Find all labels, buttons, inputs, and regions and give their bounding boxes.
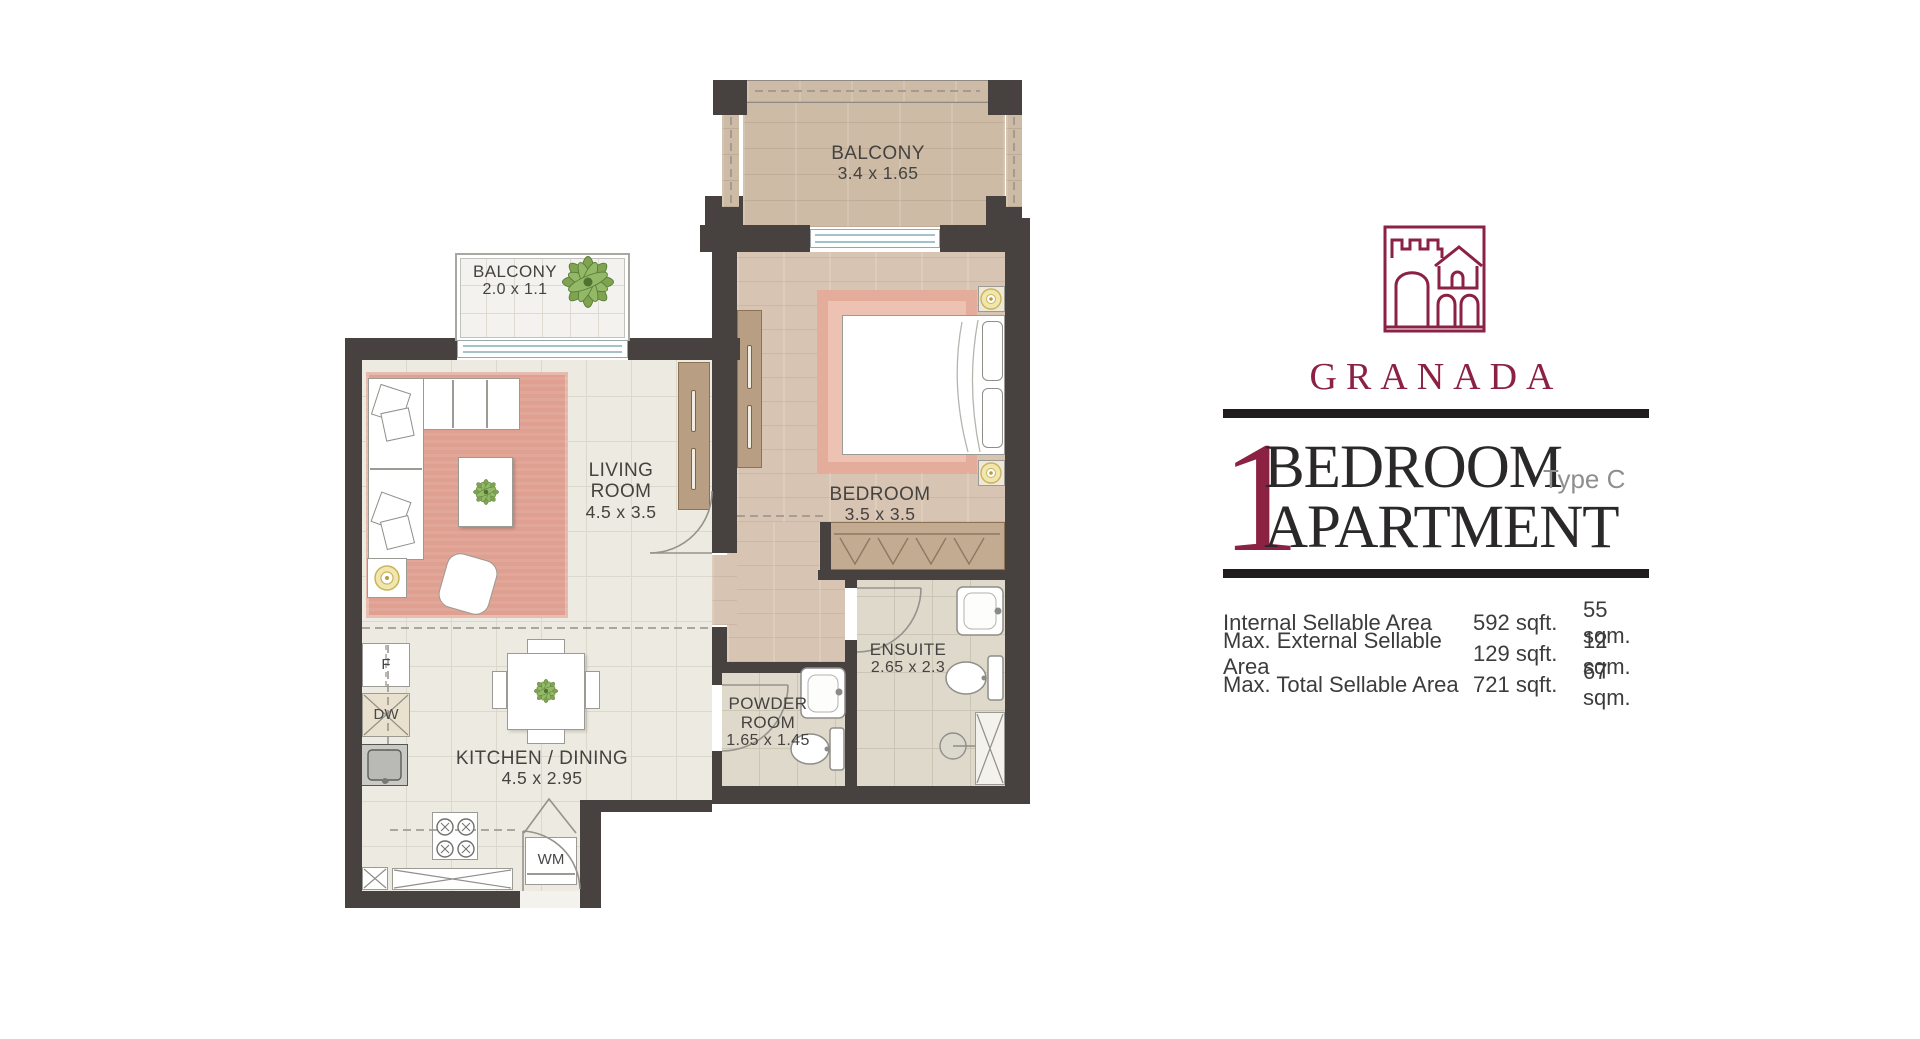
sofa-cushion-line xyxy=(486,380,488,428)
granada-logo-icon xyxy=(1382,224,1487,334)
entrance-opening xyxy=(520,891,580,908)
dining-chair xyxy=(585,671,600,709)
bed-pillow xyxy=(982,321,1003,381)
window-bedroom-balcony xyxy=(810,229,940,248)
dresser-handle xyxy=(747,405,752,449)
label-balcony-side: BALCONY 2.0 x 1.1 xyxy=(460,262,570,299)
tv-console-handle xyxy=(691,448,696,490)
brand-name: GRANADA xyxy=(1223,355,1649,399)
wall xyxy=(345,338,457,360)
kitchen-sink-unit xyxy=(360,744,408,786)
wall-bottom-right xyxy=(712,786,1030,804)
coffee-table xyxy=(458,457,513,527)
dining-chair xyxy=(527,639,565,654)
title-variant: Type C xyxy=(1543,464,1625,495)
balcony-rail xyxy=(1006,115,1022,207)
label-bedroom: BEDROOM 3.5 x 3.5 xyxy=(800,484,960,525)
label-fridge: F xyxy=(362,656,410,673)
kitchen-counter-end xyxy=(362,867,388,890)
balcony-pillar xyxy=(713,80,747,115)
area-sqft: 592 sqft. xyxy=(1473,610,1583,636)
dining-table xyxy=(507,653,585,730)
nightstand xyxy=(978,460,1005,486)
area-sqft: 129 sqft. xyxy=(1473,641,1583,667)
side-table xyxy=(367,558,407,598)
logo-big-arch xyxy=(1396,273,1428,327)
separator-bar xyxy=(1223,569,1649,578)
area-table-row: Internal Sellable Area 592 sqft. 55 sqm. xyxy=(1223,597,1649,628)
nightstand xyxy=(978,286,1005,312)
label-living-room: LIVING ROOM 4.5 x 3.5 xyxy=(575,460,667,522)
label-balcony-top: BALCONY 3.4 x 1.65 xyxy=(798,143,958,184)
floor-door-threshold xyxy=(712,555,737,625)
wall-under-wardrobe xyxy=(818,570,1005,580)
wall xyxy=(712,218,737,553)
wall xyxy=(345,338,362,908)
label-kitchen-dining: KITCHEN / DINING 4.5 x 2.95 xyxy=(442,748,642,789)
sofa-pillow xyxy=(380,407,414,441)
wall xyxy=(820,522,831,570)
wall-entry-stub xyxy=(580,812,601,908)
kitchen-counter xyxy=(392,868,513,890)
balcony-rail-top xyxy=(747,80,988,103)
sofa-cushion-line xyxy=(370,468,422,470)
bed xyxy=(842,315,1005,455)
dining-chair xyxy=(527,729,565,744)
logo-small-arch xyxy=(1438,295,1455,327)
area-sqm: 67 sqm. xyxy=(1583,659,1649,711)
exterior-mask xyxy=(601,812,712,908)
washing-machine-top-line xyxy=(527,873,575,875)
logo-house xyxy=(1439,266,1477,288)
shower xyxy=(975,712,1005,785)
tv-console-handle xyxy=(691,390,696,432)
wall-bottom xyxy=(345,891,520,908)
wall xyxy=(712,673,722,685)
sofa-cushion-line xyxy=(452,380,454,428)
wardrobe xyxy=(829,522,1005,570)
wall-connector xyxy=(580,800,712,812)
wall-powder-top xyxy=(712,662,857,673)
window-living-balcony xyxy=(457,340,628,358)
label-ensuite: ENSUITE 2.65 x 2.3 xyxy=(845,640,971,677)
area-label: Max. Total Sellable Area xyxy=(1223,672,1473,698)
bed-pillow xyxy=(982,388,1003,448)
stove xyxy=(432,812,478,860)
dresser-handle xyxy=(747,345,752,389)
area-sqft: 721 sqft. xyxy=(1473,672,1583,698)
label-powder-room: POWDER ROOM 1.65 x 1.45 xyxy=(714,694,822,750)
balcony-rail xyxy=(722,115,739,207)
wall-right xyxy=(1005,218,1030,798)
logo-small-arch xyxy=(1461,295,1478,327)
floorplan-page: BALCONY 3.4 x 1.65 BALCONY 2.0 x 1.1 LIV… xyxy=(0,0,1920,1039)
title-line1: BEDROOM xyxy=(1264,437,1562,498)
label-washing-machine: WM xyxy=(527,851,575,868)
area-table: Internal Sellable Area 592 sqft. 55 sqm.… xyxy=(1223,597,1649,690)
balcony-pillar xyxy=(988,80,1022,115)
logo-house-arch xyxy=(1452,272,1463,288)
area-table-row: Max. External Sellable Area 129 sqft. 12… xyxy=(1223,628,1649,659)
title-line2: APARTMENT xyxy=(1264,497,1619,558)
dining-chair xyxy=(492,671,507,709)
label-dishwasher: DW xyxy=(362,706,410,723)
logo-battlement xyxy=(1392,240,1442,258)
